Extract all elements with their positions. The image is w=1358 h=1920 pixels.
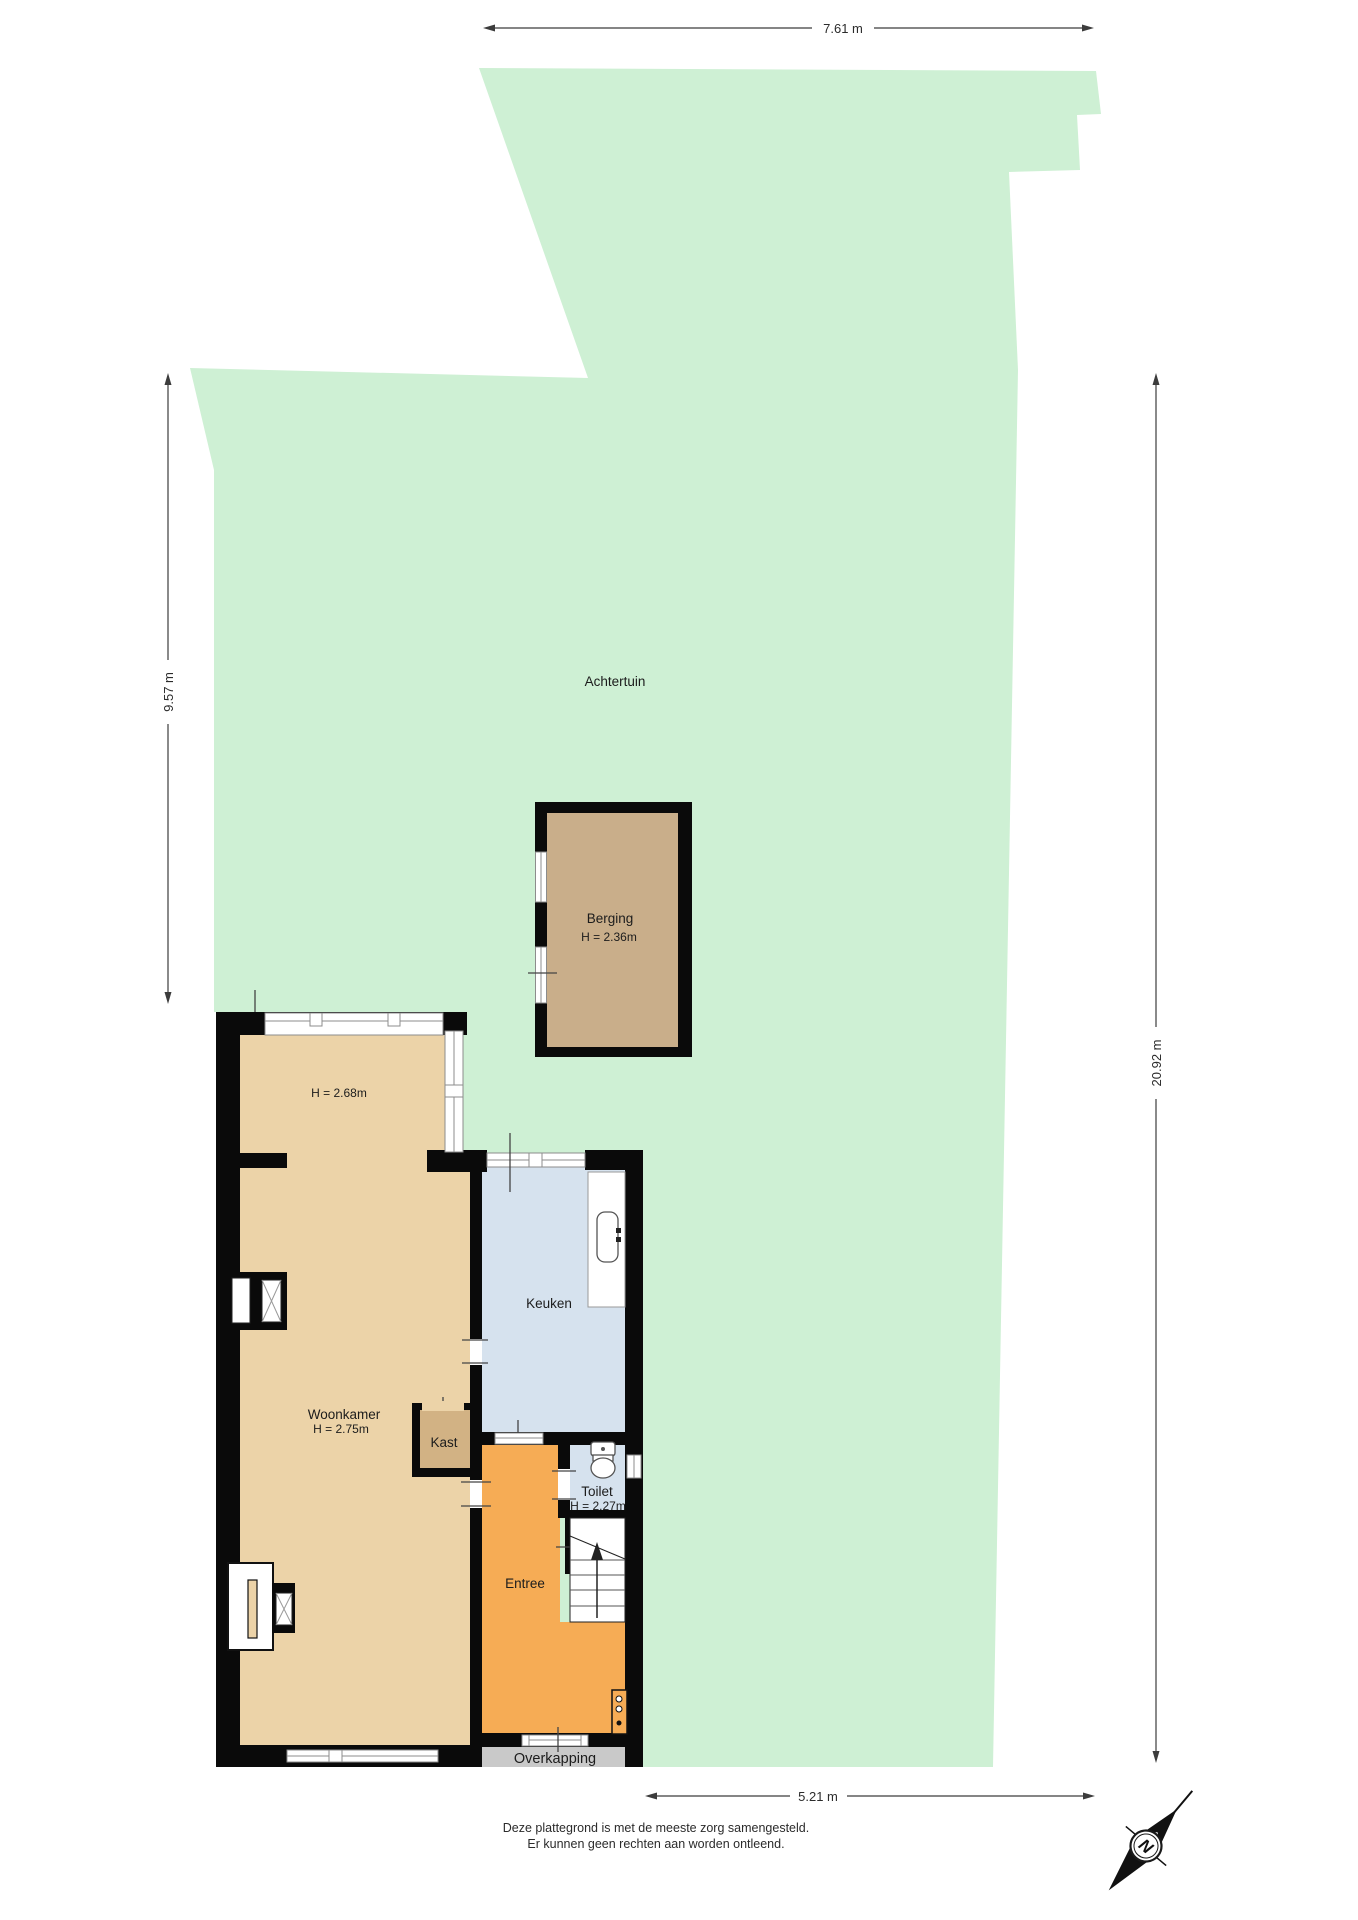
door-opening [422,1401,464,1411]
disclaimer-line-2: Er kunnen geen rechten aan worden ontlee… [527,1837,784,1851]
door-opening [470,1480,482,1508]
kitchen-counter [588,1172,625,1307]
dimension-right-label: 20.92 m [1149,1040,1164,1087]
toilet-bowl [591,1458,615,1478]
label-keuken: Keuken [526,1296,572,1311]
dimension-left: 9.57 m [161,373,176,1004]
label-toilet: Toilet [581,1484,613,1499]
dimension-top: 7.61 m [483,21,1094,36]
disclaimer-line-1: Deze plattegrond is met de meeste zorg s… [503,1821,809,1835]
arrow-left-icon [483,25,495,32]
dimension-top-label: 7.61 m [823,21,863,36]
window [265,1013,443,1035]
arrow-down-icon [1153,1751,1160,1763]
arrow-right-icon [1082,25,1094,32]
arrow-down-icon [165,992,172,1004]
label-kast: Kast [430,1435,457,1450]
staircase [570,1518,625,1622]
kitchen-sink [597,1212,618,1262]
arrow-right-icon [1083,1793,1095,1800]
label-berging: Berging [587,911,634,926]
door-opening [470,1339,482,1365]
label-toilet-height: H = 2.27m [570,1499,626,1513]
label-berging-height: H = 2.36m [581,930,637,944]
label-woonkamer-height: H = 2.75m [313,1422,369,1436]
door-opening [558,1469,570,1500]
radiator [612,1690,627,1734]
label-uitbouw-height: H = 2.68m [311,1086,367,1100]
dimension-right: 20.92 m [1149,373,1164,1763]
dimension-bottom-label: 5.21 m [798,1789,838,1804]
label-entree: Entree [505,1576,545,1591]
label-achtertuin: Achtertuin [585,674,646,689]
compass-north-icon: N [1087,1773,1213,1909]
arrow-up-icon [1153,373,1160,385]
faucet-icon [616,1228,621,1233]
label-overkapping: Overkapping [514,1751,596,1767]
arrow-left-icon [645,1793,657,1800]
dimension-bottom: 5.21 m [645,1789,1095,1804]
arrow-up-icon [165,373,172,385]
floorplan-canvas: 7.61 m 9.57 m 20.92 m 5.21 m Achtertuin … [0,0,1358,1920]
label-woonkamer: Woonkamer [308,1407,381,1422]
dimension-left-label: 9.57 m [161,672,176,712]
toilet-fixtures [591,1442,615,1478]
floorplan-svg: 7.61 m 9.57 m 20.92 m 5.21 m Achtertuin … [0,0,1358,1920]
chimney-upper [227,1272,287,1330]
